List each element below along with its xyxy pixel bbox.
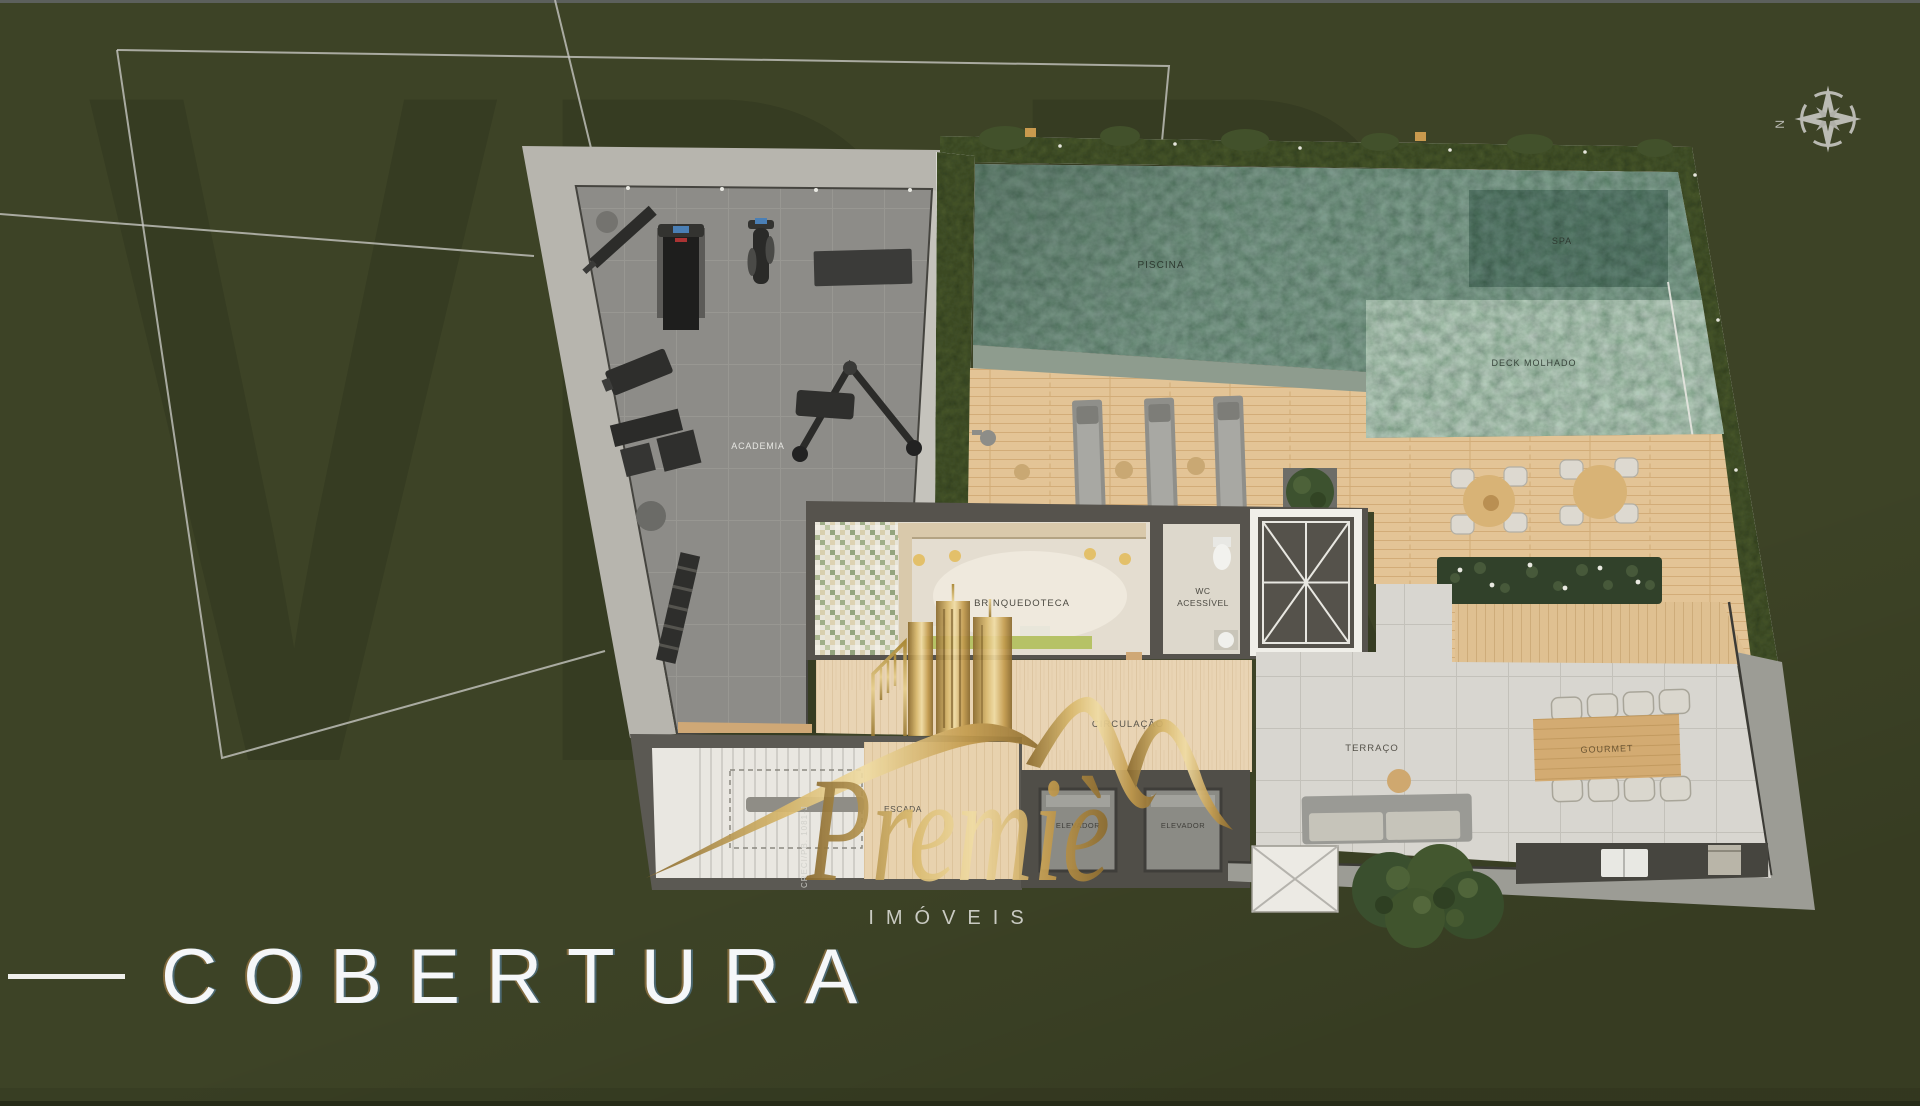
svg-text:TERRAÇO: TERRAÇO (1345, 743, 1398, 754)
svg-text:ACADEMIA: ACADEMIA (731, 441, 784, 451)
svg-text:Premiè: Premiè (805, 747, 1110, 913)
svg-text:SPA: SPA (1552, 236, 1572, 246)
svg-text:PISCINA: PISCINA (1137, 260, 1184, 271)
svg-text:ACESSÍVEL: ACESSÍVEL (1177, 598, 1229, 608)
svg-text:CRECI/PB. 1081-J: CRECI/PB. 1081-J (800, 805, 809, 888)
svg-text:N: N (1773, 120, 1787, 129)
svg-text:ELEVADOR: ELEVADOR (1161, 821, 1205, 830)
svg-text:IMÓVEIS: IMÓVEIS (868, 906, 1035, 929)
svg-text:DECK MOLHADO: DECK MOLHADO (1491, 358, 1576, 368)
svg-text:GOURMET: GOURMET (1580, 743, 1633, 755)
svg-text:BRINQUEDOTECA: BRINQUEDOTECA (974, 598, 1070, 609)
svg-text:WC: WC (1195, 586, 1210, 596)
svg-text:COBERTURA: COBERTURA (161, 932, 883, 1020)
